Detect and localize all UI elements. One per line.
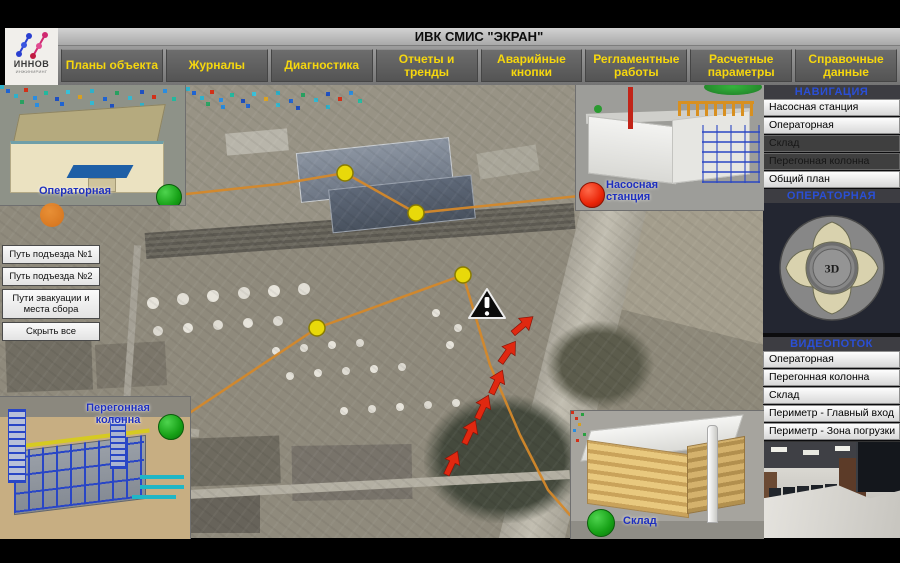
nav-operator-room-button[interactable]: Операторная [763, 117, 900, 134]
company-logo: ИННОВ ИНЖИНИРИНГ [5, 28, 58, 85]
menu-scheduled-works[interactable]: Регламентные работы [585, 49, 687, 82]
inset-operator-room-3d[interactable]: Операторная [0, 85, 186, 206]
scaffold-tower [8, 409, 26, 483]
building-canopy [67, 165, 134, 178]
logo-subtitle: ИНЖИНИРИНГ [16, 69, 48, 74]
inset-warehouse-3d[interactable]: Склад [570, 410, 764, 539]
video-warehouse-button[interactable]: Склад [763, 387, 900, 404]
video-distillation-column-button[interactable]: Перегонная колонна [763, 369, 900, 386]
navigation-header: НАВИГАЦИЯ [763, 85, 900, 99]
nav-pump-station-button[interactable]: Насосная станция [763, 99, 900, 116]
right-sidebar: НАВИГАЦИЯ Насосная станция Операторная С… [763, 85, 900, 538]
screen: ИННОВ ИНЖИНИРИНГ ИВК СМИС "ЭКРАН" Планы … [0, 0, 900, 563]
evacuation-routes-button[interactable]: Пути эвакуации и места сбора [2, 289, 100, 319]
page-title: ИВК СМИС "ЭКРАН" [415, 29, 543, 44]
red-pipe [628, 87, 633, 129]
menu-emergency-buttons[interactable]: Аварийные кнопки [481, 49, 583, 82]
video-operator-room-button[interactable]: Операторная [763, 351, 900, 368]
point-cloud-decor [0, 85, 4, 89]
camera-joystick: 3D [763, 203, 900, 333]
menu-calculated-parameters[interactable]: Расчетные параметры [690, 49, 792, 82]
nav-distillation-column-button[interactable]: Перегонная колонна [763, 153, 900, 170]
video-feed-preview[interactable] [763, 441, 900, 538]
warehouse-status-dot[interactable] [587, 509, 615, 537]
map-industrial-ground [170, 85, 590, 230]
inset-label-operator-room: Операторная [0, 185, 150, 197]
menu-reference-data[interactable]: Справочные данные [795, 49, 897, 82]
green-tank [704, 85, 762, 95]
nav-general-plan-button[interactable]: Общий план [763, 171, 900, 188]
joystick-3d-label: 3D [824, 262, 839, 276]
warehouse-wall [587, 440, 689, 518]
map-vegetation [545, 320, 655, 410]
map-rail-corridor [145, 203, 576, 259]
title-bar: ИВК СМИС "ЭКРАН" [58, 28, 900, 46]
main-menu: Планы объекта Журналы Диагностика Отчеты… [58, 46, 900, 85]
video-header: ВИДЕОПОТОК [763, 337, 900, 351]
map-vegetation [424, 395, 582, 523]
menu-journals[interactable]: Журналы [166, 49, 268, 82]
crane-frame [678, 101, 754, 116]
pipe-rack [702, 125, 760, 183]
ceiling-light [803, 450, 819, 455]
map-building [296, 137, 454, 203]
distillation-column-status-dot[interactable] [158, 414, 184, 440]
nav-warehouse-button[interactable]: Склад [763, 135, 900, 152]
menu-diagnostics[interactable]: Диагностика [271, 49, 373, 82]
joystick-icon: 3D [770, 207, 894, 329]
map-road [150, 470, 570, 501]
map-label-distillation-column: Перегонная колонна [70, 402, 166, 426]
cyan-pipe [140, 475, 184, 479]
inset-label-warehouse: Склад [623, 515, 657, 527]
video-perimeter-loading-zone-button[interactable]: Периметр - Зона погрузки [763, 423, 900, 440]
main-area: Перегонная колонна Операторная [0, 85, 900, 538]
route-access-1-button[interactable]: Путь подъезда №1 [2, 245, 100, 264]
logo-title: ИННОВ [14, 60, 49, 69]
pump-station-status-dot[interactable] [579, 182, 605, 208]
menu-object-plans[interactable]: Планы объекта [61, 49, 163, 82]
hide-all-button[interactable]: Скрыть все [2, 322, 100, 341]
map-city-block [95, 341, 167, 389]
letterbox [0, 538, 900, 563]
inset-pump-station-3d[interactable]: Насосная станция [575, 85, 764, 211]
map-city-block [292, 444, 413, 501]
operator-room-status-dot[interactable] [156, 184, 182, 206]
video-perimeter-main-entrance-button[interactable]: Периметр - Главный вход [763, 405, 900, 422]
point-cloud-decor [571, 411, 574, 414]
inset-label-pump-station: Насосная станция [606, 179, 690, 203]
large-monitor [856, 442, 900, 492]
map-building [225, 128, 289, 155]
map-city-block [189, 435, 281, 486]
ceiling-light [835, 446, 850, 451]
map-building [476, 144, 539, 179]
app-window: ИННОВ ИНЖИНИРИНГ ИВК СМИС "ЭКРАН" Планы … [0, 28, 900, 538]
menu-reports-trends[interactable]: Отчеты и тренды [376, 49, 478, 82]
logo-molecule-icon [15, 30, 49, 60]
valve-dot [594, 105, 602, 113]
camera-header: ОПЕРАТОРНАЯ [763, 189, 900, 203]
point-cloud-decor [186, 87, 190, 91]
map-building [328, 175, 476, 234]
white-stack [707, 425, 718, 523]
route-access-2-button[interactable]: Путь подъезда №2 [2, 267, 100, 286]
route-panel: Путь подъезда №1 Путь подъезда №2 Пути э… [2, 245, 100, 341]
ceiling-light [771, 447, 787, 452]
